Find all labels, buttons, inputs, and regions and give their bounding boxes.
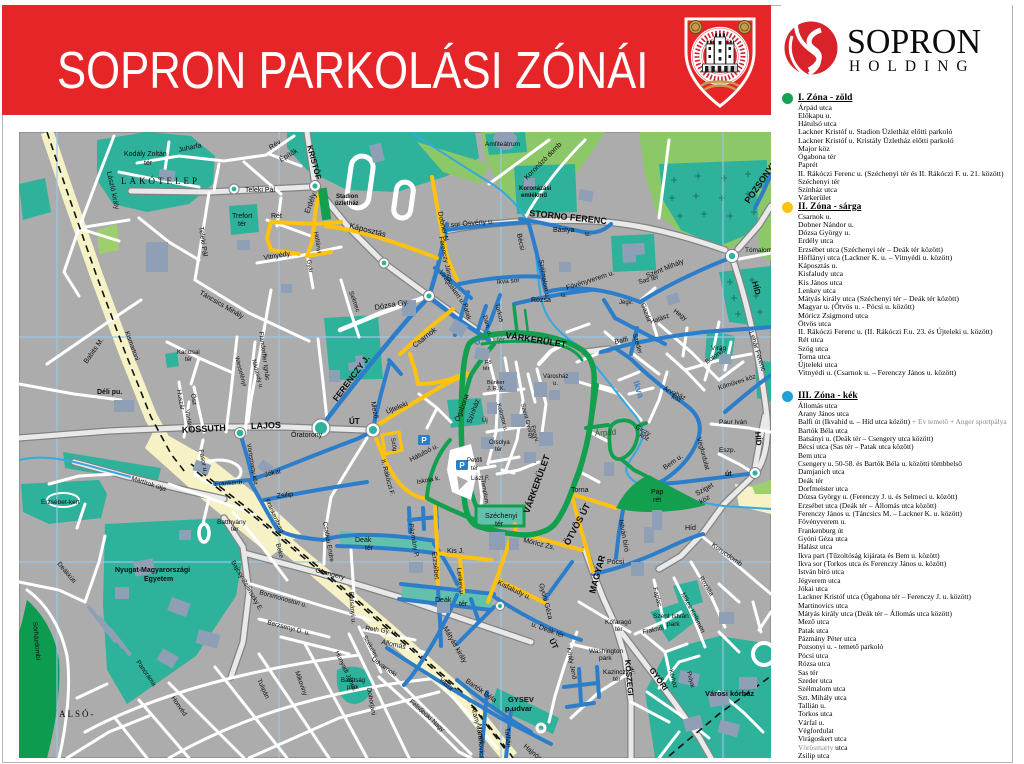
svg-text:Deák: Deák xyxy=(355,537,372,544)
svg-text:tér: tér xyxy=(459,601,468,608)
svg-text:emlékmű: emlékmű xyxy=(521,193,547,199)
svg-text:Híd: Híd xyxy=(685,525,696,532)
svg-text:tér: tér xyxy=(365,545,374,552)
svg-text:tér: tér xyxy=(471,466,478,472)
svg-text:Erzsébet-kert: Erzsébet-kert xyxy=(41,499,80,506)
svg-text:Pap: Pap xyxy=(651,489,664,496)
svg-text:Pócsi: Pócsi xyxy=(607,559,625,566)
svg-text:tér: tér xyxy=(185,357,192,363)
svg-text:GYSEV: GYSEV xyxy=(508,695,534,704)
svg-text:Stadion: Stadion xyxy=(336,194,358,200)
svg-text:u.: u. xyxy=(553,381,558,387)
svg-text:p.udvar: p.udvar xyxy=(505,704,532,713)
svg-text:Trefort: Trefort xyxy=(232,213,252,220)
svg-text:Orsolya: Orsolya xyxy=(489,440,510,446)
svg-text:park: park xyxy=(667,621,680,628)
svg-text:tér: tér xyxy=(495,447,502,453)
svg-text:tér: tér xyxy=(495,521,504,528)
svg-text:rét: rét xyxy=(653,497,661,504)
svg-text:u.: u. xyxy=(585,231,591,238)
svg-text:HÍD: HÍD xyxy=(753,431,763,446)
svg-text:Kanizsai: Kanizsai xyxy=(177,350,200,356)
svg-text:Egyetem: Egyetem xyxy=(144,576,173,583)
svg-text:Batthyány: Batthyány xyxy=(217,519,247,526)
svg-text:Jégv.: Jégv. xyxy=(619,300,633,306)
svg-text:tér: tér xyxy=(144,160,153,167)
svg-text:Szent István: Szent István xyxy=(653,613,689,620)
svg-text:tér: tér xyxy=(613,676,621,683)
svg-text:tér: tér xyxy=(615,626,623,633)
svg-text:Tómalom: Tómalom xyxy=(745,247,771,254)
svg-text:Washington: Washington xyxy=(589,648,623,655)
svg-text:tér: tér xyxy=(497,337,506,344)
svg-text:Amfiteátrum: Amfiteátrum xyxy=(485,141,520,148)
svg-text:Őratorony: Őratorony xyxy=(291,430,323,439)
svg-text:Teleki Pál: Teleki Pál xyxy=(245,187,275,194)
svg-text:LAJOS: LAJOS xyxy=(251,420,281,431)
svg-text:Városház: Városház xyxy=(543,374,568,380)
svg-text:Eszp.: Eszp. xyxy=(719,447,735,454)
svg-text:Árpád: Árpád xyxy=(595,428,617,438)
svg-text:Kis J.: Kis J. xyxy=(447,548,464,555)
svg-text:Déli pu.: Déli pu. xyxy=(97,389,122,396)
svg-text:tér: tér xyxy=(483,366,490,372)
svg-text:Városi kórház: Városi kórház xyxy=(705,689,754,698)
svg-text:ALSÓ-: ALSÓ- xyxy=(59,709,96,719)
svg-text:Kőfaragó: Kőfaragó xyxy=(605,619,632,626)
svg-text:J. R. K.: J. R. K. xyxy=(487,386,506,392)
svg-text:park: park xyxy=(599,655,612,662)
svg-text:Rózsa: Rózsa xyxy=(531,297,551,304)
svg-text:ÚT: ÚT xyxy=(349,417,360,426)
svg-text:Barátság: Barátság xyxy=(341,678,365,684)
svg-text:Új: Új xyxy=(482,417,488,424)
svg-text:Rét: Rét xyxy=(271,213,282,220)
svg-text:Kodály Zoltán: Kodály Zoltán xyxy=(124,151,167,158)
svg-text:Bástya: Bástya xyxy=(553,227,575,234)
svg-text:Torna: Torna xyxy=(571,487,589,494)
svg-text:u.: u. xyxy=(561,292,567,299)
svg-text:út: út xyxy=(725,471,732,478)
svg-text:Nyugat-Magyarországi: Nyugat-Magyarországi xyxy=(115,567,190,574)
svg-text:P: P xyxy=(459,461,465,470)
svg-text:Széchenyi: Széchenyi xyxy=(485,513,518,520)
svg-text:tér: tér xyxy=(231,526,239,533)
svg-text:LAKÓTELEP: LAKÓTELEP xyxy=(121,176,200,186)
svg-text:üzletház: üzletház xyxy=(335,201,359,207)
svg-text:Koronázási: Koronázási xyxy=(519,186,552,192)
svg-text:tér: tér xyxy=(238,221,247,228)
svg-text:Virág: Virág xyxy=(711,345,726,352)
svg-text:Petőfi: Petőfi xyxy=(467,458,482,464)
svg-text:Paur Iván: Paur Iván xyxy=(719,419,747,426)
svg-text:Deák: Deák xyxy=(435,597,452,604)
svg-text:park: park xyxy=(347,685,360,691)
svg-text:P: P xyxy=(421,436,427,445)
